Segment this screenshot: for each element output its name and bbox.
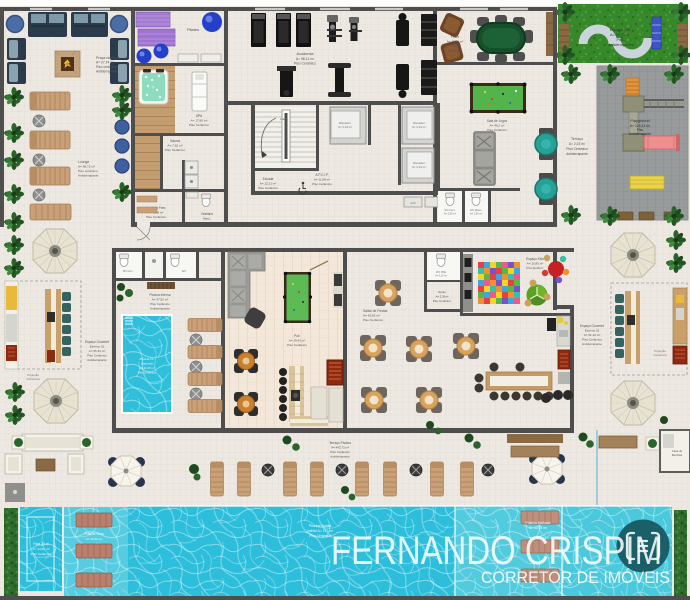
svg-text:Bombas: Bombas [672,453,683,457]
svg-text:A= 17,80 m²: A= 17,80 m² [191,119,208,123]
svg-text:Pub: Pub [294,334,300,338]
svg-text:A= 34,00 m²: A= 34,00 m² [33,547,50,551]
svg-text:Piscina Borda: Piscina Borda [309,524,331,528]
svg-text:A.P.C.I.P.: A.P.C.I.P. [315,173,328,177]
svg-text:Antiderrapante: Antiderrapante [582,342,602,346]
svg-text:Externo 01: Externo 01 [90,345,105,349]
svg-text:Poker: Poker [451,35,460,39]
svg-text:Academia: Academia [297,52,315,56]
svg-text:Piso Cerâmico: Piso Cerâmico [150,302,170,306]
svg-text:Antiderrapante: Antiderrapante [629,132,651,136]
svg-text:WC Fem.: WC Fem. [445,208,456,212]
svg-text:Infinita A= 177 m²: Infinita A= 177 m² [307,529,334,533]
svg-text:Piso Cerâmico: Piso Cerâmico [31,552,51,556]
svg-text:Antiderrapante: Antiderrapante [96,70,118,74]
svg-text:Prainha Molhada: Prainha Molhada [526,521,551,525]
svg-text:Piso: Piso [452,44,458,48]
svg-text:Piso Cerâmico: Piso Cerâmico [287,343,307,347]
svg-text:Prainha Seca: Prainha Seca [84,532,103,536]
svg-text:Cobertura: Cobertura [26,377,40,381]
svg-text:A= 3,24 m²: A= 3,24 m² [412,165,426,169]
svg-text:A= 2,56 m²: A= 2,56 m² [470,213,482,216]
svg-text:A= 98,11 m²: A= 98,11 m² [296,57,315,61]
svg-text:Escada: Escada [263,177,274,181]
svg-text:Terraço: Terraço [571,137,583,141]
svg-text:Praça do Fogo: Praça do Fogo [96,56,120,60]
svg-text:WC Masc.: WC Masc. [470,208,482,212]
svg-text:CORRETOR DE IMÓVEIS: CORRETOR DE IMÓVEIS [481,568,670,587]
svg-text:Piso Cerâmico: Piso Cerâmico [165,148,185,152]
svg-text:A= 15,80 m²: A= 15,80 m² [527,262,543,266]
svg-text:Pilates: Pilates [187,27,199,32]
svg-text:Piso: Piso [617,38,624,42]
svg-text:Antiderrapante: Antiderrapante [566,152,588,156]
svg-text:Piso Cerâmico: Piso Cerâmico [363,318,383,322]
svg-text:Externo 02: Externo 02 [585,329,600,333]
svg-text:Sauna: Sauna [170,139,180,143]
svg-text:Piso cerâmico: Piso cerâmico [78,169,98,173]
svg-text:A= 46,2 m²: A= 46,2 m² [490,124,505,128]
svg-text:Playground: Playground [630,119,649,123]
svg-text:Espaço Gourmet: Espaço Gourmet [580,324,604,328]
svg-text:A= 443,73 m²: A= 443,73 m² [331,446,349,450]
svg-text:A= 39,43 m²: A= 39,43 m² [289,339,305,343]
svg-text:Hall: Hall [280,117,286,121]
svg-text:Antiderrapante: Antiderrapante [330,455,350,459]
svg-text:Cerâmico: Cerâmico [449,49,462,53]
svg-text:Masc.: Masc. [203,217,211,221]
svg-text:Antiderrapante: Antiderrapante [150,307,170,311]
svg-text:Cobertura: Cobertura [653,353,667,357]
svg-text:Piso Cerâmico: Piso Cerâmico [312,182,332,186]
svg-text:Antiderrapante: Antiderrapante [87,358,107,362]
svg-text:GÁS: GÁS [410,201,416,205]
svg-text:A= 7,52 m²: A= 7,52 m² [167,144,182,148]
svg-text:A= 27,74 m²: A= 27,74 m² [96,61,115,65]
svg-text:Apoio: Apoio [438,290,446,294]
svg-text:Raia 25 m: Raia 25 m [33,542,49,546]
svg-text:WC: WC [182,270,186,273]
svg-text:A= 2,56 m²: A= 2,56 m² [444,213,456,216]
svg-text:Piscina Interna: Piscina Interna [149,293,170,297]
svg-text:Piso Cerâmico: Piso Cerâmico [330,450,350,454]
svg-text:Sala de Jogos: Sala de Jogos [487,119,508,123]
svg-text:A= 2,15 m²: A= 2,15 m² [569,142,586,146]
svg-text:Piso Cerâmico: Piso Cerâmico [138,371,157,375]
svg-text:Piscina Int.: Piscina Int. [140,357,155,361]
svg-text:Antiderrapante: Antiderrapante [78,174,99,178]
svg-text:Aquecida: Aquecida [141,362,153,366]
svg-text:A= 65,33 m²: A= 65,33 m² [89,349,105,353]
svg-text:Piso Cerâmico: Piso Cerâmico [566,147,588,151]
svg-text:A= 23,25 m²: A= 23,25 m² [139,366,154,370]
svg-text:A= 61,16 m²: A= 61,16 m² [584,333,600,337]
svg-text:A= 3,10 m²: A= 3,10 m² [435,275,447,278]
svg-text:Vestiário: Vestiário [201,212,213,216]
svg-text:Terraço Piscina: Terraço Piscina [329,441,351,445]
svg-text:Piso Cerâmico: Piso Cerâmico [258,186,278,190]
svg-text:WC Fem.: WC Fem. [123,270,134,273]
svg-text:A= 3,24 m²: A= 3,24 m² [338,125,352,129]
svg-text:Espaço Pet: Espaço Pet [610,27,631,32]
svg-text:Piso Cerâmico: Piso Cerâmico [189,123,209,127]
svg-text:Piso Emborr.: Piso Emborr. [526,266,543,270]
svg-text:Piso cerâmico: Piso cerâmico [96,65,117,69]
svg-text:Piso Cerâmico: Piso Cerâmico [309,534,331,538]
svg-text:A= 2,39m²: A= 2,39m² [436,295,449,299]
svg-text:A= 26,20 m²: A= 26,20 m² [610,33,630,37]
svg-text:A= 93,82 m²: A= 93,82 m² [363,314,380,318]
svg-text:Espaço Gourmet: Espaço Gourmet [85,340,109,344]
svg-text:Piso Cerâmico: Piso Cerâmico [146,215,166,219]
svg-text:A= 47,92 m²: A= 47,92 m² [152,298,168,302]
svg-text:Salão de Festas: Salão de Festas [363,309,388,313]
svg-text:A= 12,21 m²: A= 12,21 m² [260,182,276,186]
svg-text:A= 11,68 m²: A= 11,68 m² [314,178,330,182]
svg-text:Espaço Kids: Espaço Kids [526,257,544,261]
svg-text:A= 96,72 m²: A= 96,72 m² [78,165,95,169]
svg-text:A= 40,00 m²: A= 40,00 m² [86,537,102,541]
svg-text:Piso Cerâmico: Piso Cerâmico [433,299,452,303]
svg-text:Piso Cerâmico: Piso Cerâmico [294,62,316,66]
svg-text:FERNANDO CRISPIM: FERNANDO CRISPIM [331,529,662,573]
svg-text:A= 3,24 m²: A= 3,24 m² [412,125,426,129]
svg-text:Antiderrapante: Antiderrapante [608,43,632,47]
svg-text:SPA: SPA [196,114,203,118]
svg-text:Piso Cerâmico: Piso Cerâmico [87,354,107,358]
svg-text:Piso Cerâmico: Piso Cerâmico [582,338,602,342]
svg-text:Lounge: Lounge [78,160,89,164]
svg-text:A= 19,36 m²: A= 19,36 m² [447,40,463,44]
